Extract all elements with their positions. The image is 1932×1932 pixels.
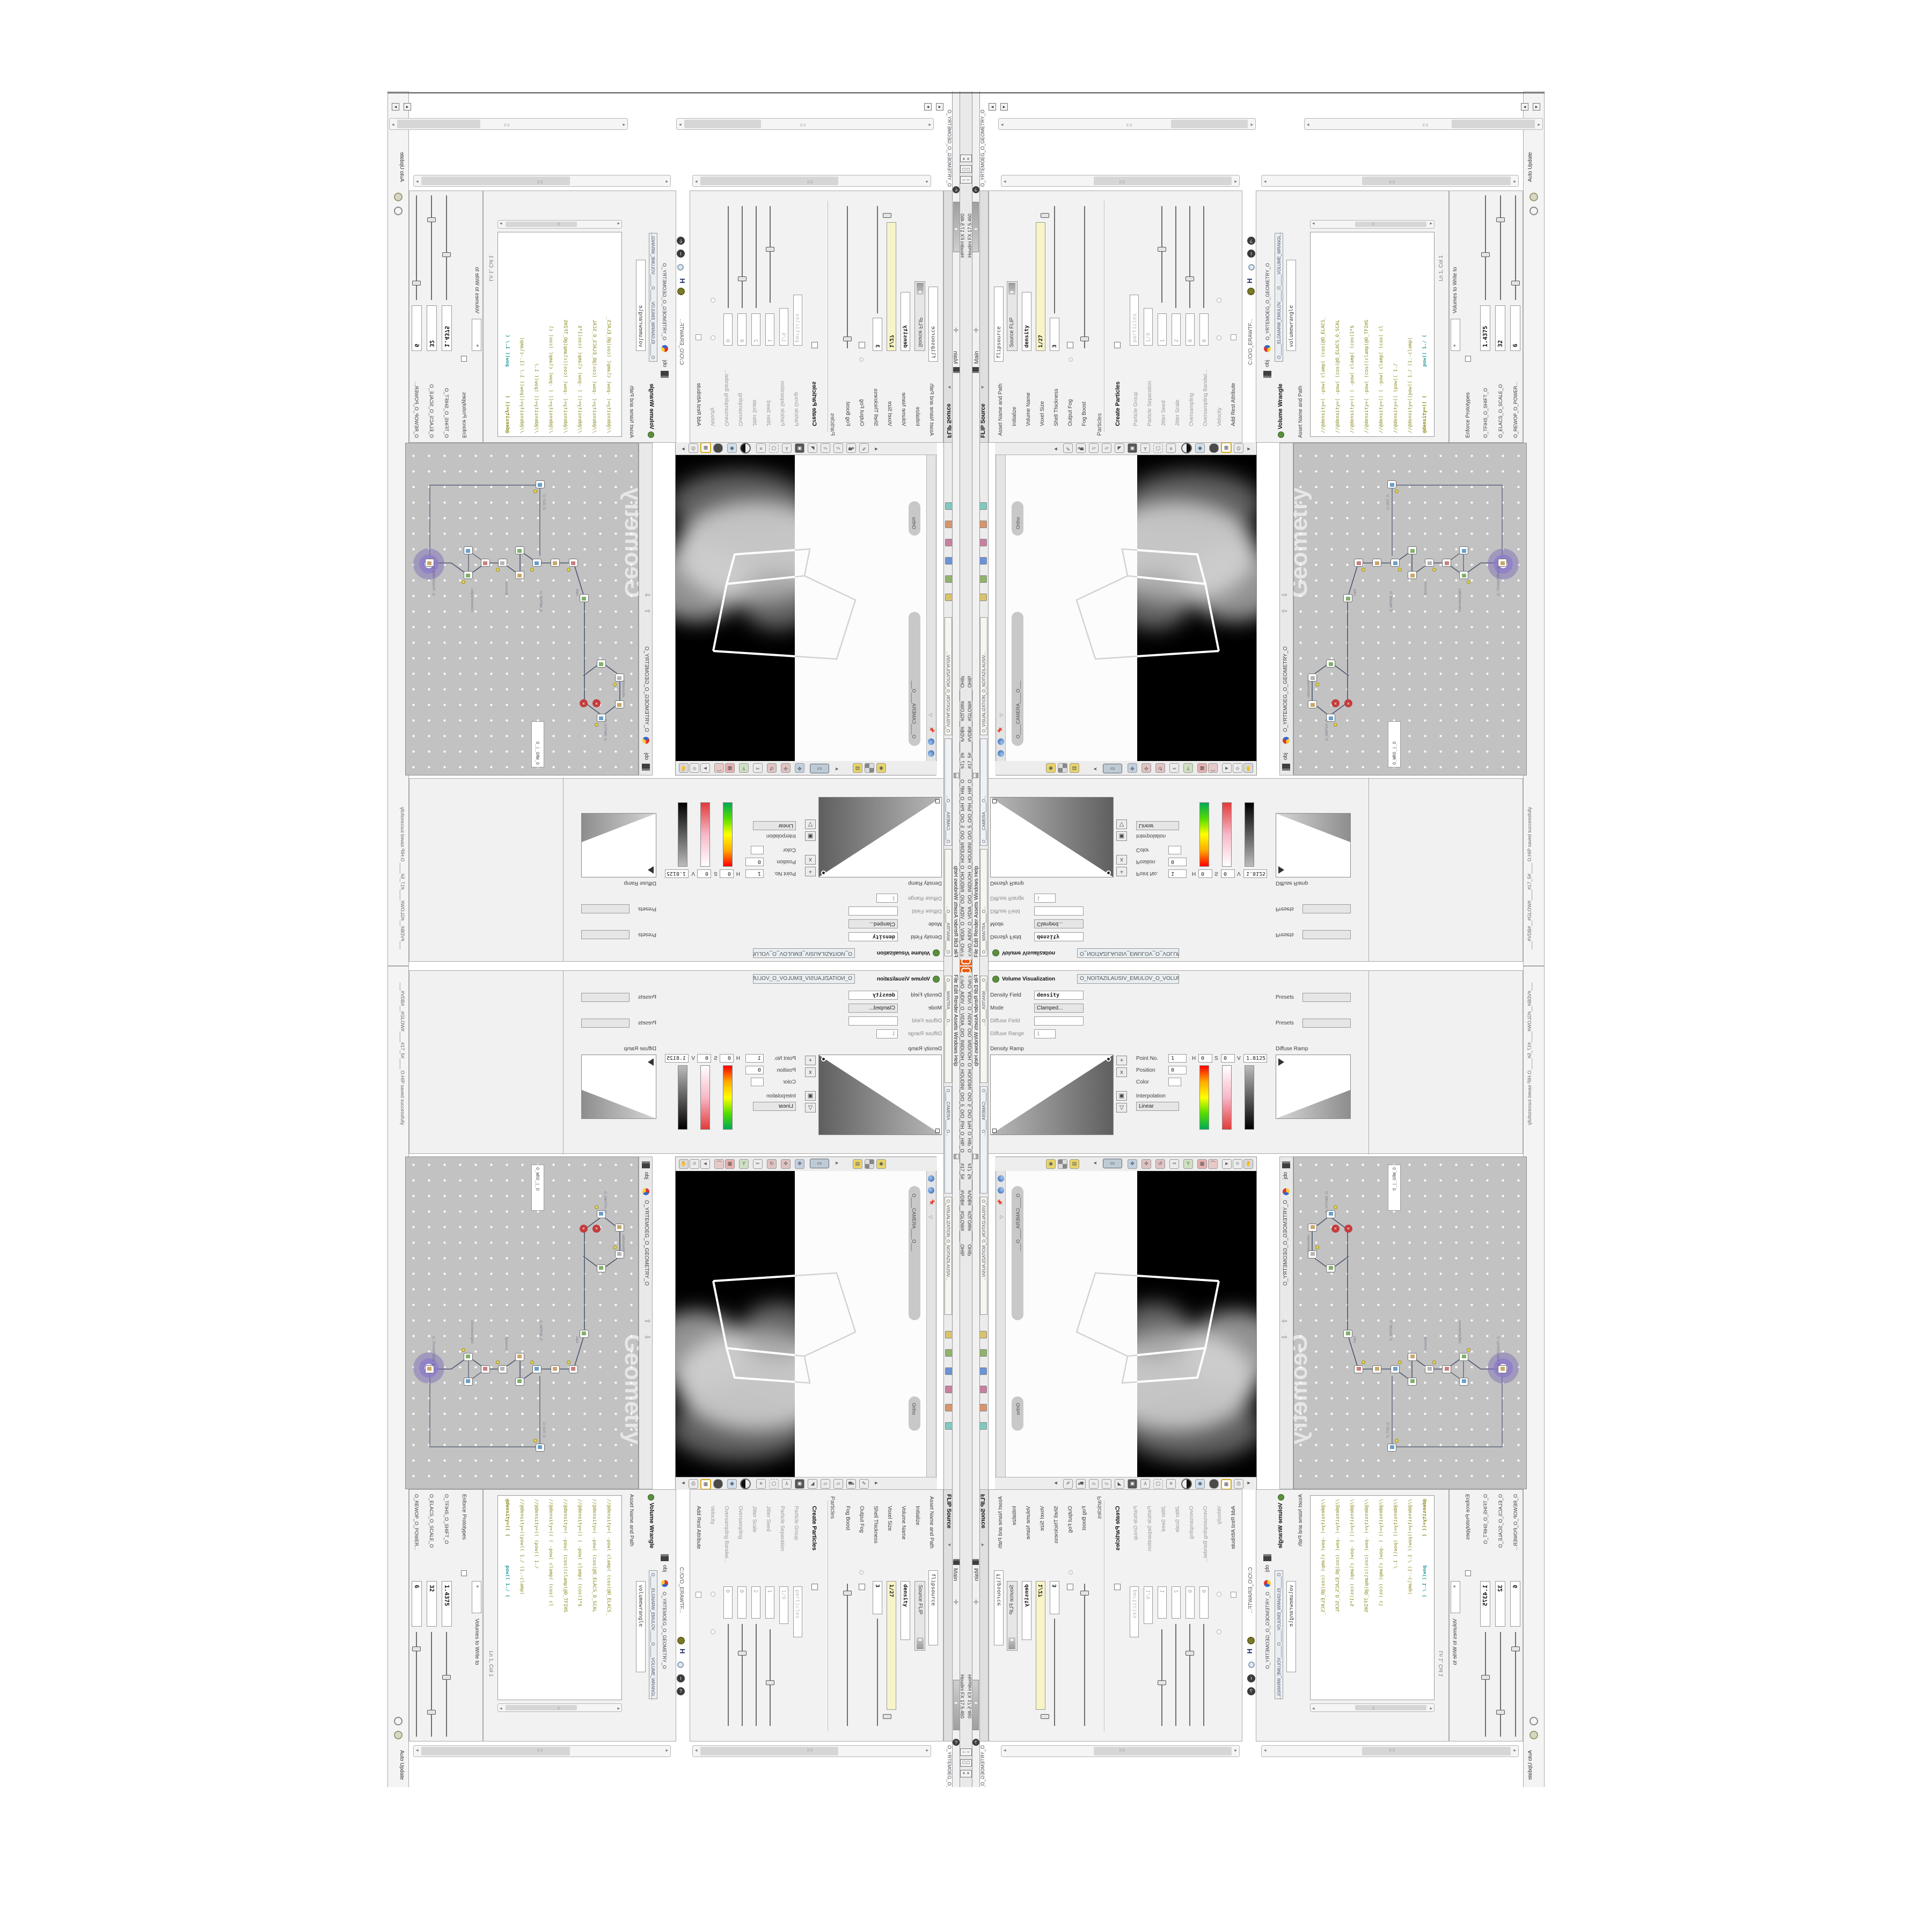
node-flag-dot[interactable] — [533, 1439, 537, 1443]
title-bar[interactable]: c:/o/O_AIDIV_O_VIDIA_O/O_INIDUOH_O_HOUDI… — [960, 966, 966, 1787]
rotate-tool-icon[interactable]: ↻ — [767, 763, 777, 773]
hue-input[interactable]: 0 — [1198, 1054, 1212, 1063]
particle-separation-input[interactable]: 1/9 — [1144, 1586, 1153, 1624]
notebook-icon[interactable]: ▤ — [853, 1159, 862, 1169]
lasso-tool-icon[interactable]: ⌒ — [1208, 1159, 1218, 1169]
shift-slider-handle[interactable] — [442, 1675, 451, 1680]
tripod-icon[interactable]: ⅄ — [782, 443, 792, 453]
sheet-icon[interactable]: ▱ — [1102, 443, 1111, 453]
desktop-selector[interactable]: Main — [973, 351, 980, 364]
help-icon[interactable]: ? — [1247, 1687, 1255, 1695]
search-icon[interactable] — [677, 264, 684, 270]
wrangle-obj-crumb[interactable]: obj — [661, 360, 668, 367]
render-sphere-icon[interactable] — [1181, 1479, 1192, 1489]
stow-sphere-icon[interactable] — [928, 738, 934, 745]
presets-dropdown-1[interactable] — [581, 993, 630, 1002]
flip-name-input[interactable]: flipsource — [928, 287, 938, 362]
diffuse-range-input[interactable]: 1 — [876, 1029, 898, 1038]
houdini-h-icon[interactable]: H — [678, 279, 686, 283]
graph-node[interactable] — [498, 559, 507, 567]
menu-items[interactable]: File Edit Render Assets Windows Help — [952, 866, 959, 957]
ramp-add-button[interactable]: + — [805, 1056, 816, 1065]
search-icon[interactable] — [1248, 1662, 1255, 1668]
color-swatch[interactable] — [751, 1078, 764, 1086]
scale-slider-handle[interactable] — [427, 1710, 436, 1715]
shift-slider[interactable] — [1485, 1632, 1486, 1737]
shelf-tool-icon[interactable] — [945, 502, 953, 510]
eye-icon[interactable]: ◉ — [1195, 443, 1205, 453]
graph-node[interactable] — [569, 1365, 578, 1373]
corner-arrow[interactable]: ◂ — [1000, 103, 1008, 111]
view-tool-icon[interactable]: ✋ — [1243, 1159, 1253, 1169]
color-swatch[interactable] — [751, 846, 764, 854]
stow-sphere-icon[interactable] — [928, 1187, 934, 1194]
shell-thickness-input[interactable]: 3 — [873, 318, 882, 351]
node-flag-dot[interactable] — [1467, 580, 1470, 584]
node-flag-dot[interactable] — [1432, 568, 1436, 572]
volume-name-input[interactable]: density — [1022, 292, 1031, 351]
title-bar[interactable]: c:/o/O_AIDIV_O_VIDIA_O/O_INIDUOH_O_HOUDI… — [966, 966, 972, 1787]
scale-slider-handle[interactable] — [1496, 1710, 1505, 1715]
position-input[interactable]: 0 — [745, 1066, 764, 1074]
mode-dropdown[interactable]: Clamped... — [848, 919, 898, 928]
particle-group-input[interactable]: particles — [793, 295, 802, 346]
write-to-input[interactable]: * — [1451, 1581, 1460, 1613]
graph-node[interactable] — [1308, 1224, 1317, 1232]
volume-name-input[interactable]: density — [901, 1581, 910, 1640]
gear-icon[interactable] — [1247, 1637, 1255, 1644]
power-slider-handle[interactable] — [412, 1646, 421, 1651]
curve-icon[interactable]: ◢ — [1115, 443, 1124, 453]
graph-node[interactable] — [1408, 546, 1417, 554]
jitter-scale-input[interactable]: 2 — [751, 1586, 760, 1619]
box-select-icon[interactable]: ▦ — [725, 763, 735, 773]
oversampling-bw-input[interactable]: 0 — [723, 1586, 733, 1619]
graph-node[interactable] — [515, 571, 524, 579]
wrangle-tab[interactable]: O_____ELGNARW_EMULOV_____O_____VOLUME_WR… — [649, 233, 657, 362]
graph-node[interactable] — [536, 1444, 545, 1452]
graph-node[interactable] — [1354, 559, 1363, 567]
ramp-expand-button[interactable]: ▣ — [805, 831, 816, 841]
box-select-icon[interactable]: ▦ — [1197, 763, 1207, 773]
particle-separation-input[interactable]: 1/9 — [1144, 308, 1153, 346]
sat-input[interactable]: 0 — [1221, 869, 1235, 878]
diffuse-ramp-widget[interactable] — [1276, 1055, 1351, 1119]
desktop-selector[interactable]: Main — [952, 1568, 959, 1581]
oversampling-input[interactable]: 0 — [1185, 313, 1195, 346]
quadview-icon[interactable]: ▦ — [1221, 1479, 1232, 1490]
enforce-checkbox[interactable] — [461, 356, 467, 362]
render-sphere-icon[interactable] — [740, 443, 751, 453]
shell-thickness-input[interactable]: 3 — [873, 1581, 882, 1614]
position-input[interactable]: 0 — [1168, 858, 1187, 866]
ortho-pill[interactable]: Ortho — [1012, 1396, 1023, 1431]
node-flag-dot[interactable] — [567, 1360, 570, 1364]
gear-icon[interactable] — [1247, 288, 1255, 295]
shift-param-input[interactable]: 1.4375 — [442, 1581, 452, 1627]
mode-dropdown[interactable]: Clamped... — [848, 1004, 898, 1013]
checker-diamond-icon[interactable] — [1058, 763, 1067, 773]
node-flag-dot[interactable] — [613, 683, 617, 686]
curve-icon[interactable]: ◢ — [1115, 1479, 1124, 1489]
objects-mode-box[interactable]: ▭ — [810, 764, 829, 773]
shelf-tab-mantra[interactable]: O____MANTRA____O... — [945, 976, 952, 1083]
point-no-input[interactable]: 1 — [745, 869, 764, 878]
color-wheel-icon[interactable] — [1283, 1188, 1290, 1195]
position-input[interactable]: 0 — [745, 858, 764, 866]
shell-thickness-input[interactable]: 3 — [1050, 1581, 1059, 1614]
shift-slider-handle[interactable] — [442, 252, 451, 257]
flip-name-input[interactable]: flipsource — [994, 1570, 1004, 1645]
rotate-tool-icon[interactable]: ↻ — [1155, 1159, 1165, 1169]
select-arrow-icon[interactable]: ◄ — [700, 763, 710, 773]
corner-arrow[interactable]: ▸ — [989, 103, 996, 111]
notebook-icon[interactable]: ▤ — [853, 763, 862, 773]
viewport-pane[interactable]: ✋ ⟐ ◄ ⌒ ▦ Y ✂ ↻ ✣ ✥ ▭ ➤ ▤ ◉ — [675, 443, 936, 775]
code-scrollbar[interactable]: ⠿◂▸ — [497, 1703, 622, 1712]
network-down-arrow[interactable]: ⇩ — [1281, 1334, 1289, 1340]
lamp-icon[interactable]: ◉ — [1046, 763, 1056, 773]
node-flag-dot[interactable] — [595, 1205, 598, 1209]
scale-slider[interactable] — [1500, 1632, 1501, 1737]
density-ramp-widget[interactable] — [818, 1055, 942, 1135]
particle-group-input[interactable]: particles — [1130, 1586, 1139, 1637]
cage-icon[interactable]: ▣ — [795, 443, 804, 453]
power-param-input[interactable]: 6 — [412, 305, 422, 351]
scale-param-input[interactable]: 32 — [1495, 305, 1505, 351]
scale-slider[interactable] — [431, 195, 432, 300]
presets-dropdown-2[interactable] — [1302, 904, 1351, 913]
ramp-flip-button[interactable]: ▽ — [805, 1103, 816, 1113]
graph-node[interactable] — [464, 1353, 473, 1361]
enforce-checkbox[interactable] — [461, 1570, 467, 1576]
maximize-button[interactable]: □ — [966, 1759, 972, 1767]
lasso-tool-icon[interactable]: ⌒ — [714, 763, 724, 773]
fog-boost-slider-handle[interactable] — [1080, 336, 1089, 341]
select-arrow-icon[interactable]: ◄ — [1222, 763, 1232, 773]
minimize-button[interactable]: – — [960, 176, 966, 184]
point-no-input[interactable]: 1 — [1168, 1054, 1187, 1063]
network-path-text[interactable]: O_YRTEMOEG_O_GEOMETRY_O — [1282, 646, 1290, 732]
clapperboard-icon[interactable] — [1282, 1161, 1290, 1168]
diffuse-ramp-widget[interactable] — [581, 1055, 656, 1119]
shelf-tool-icon[interactable] — [945, 1404, 953, 1411]
axis-jack-icon[interactable]: Y — [1183, 763, 1193, 773]
diffuse-ramp-handle[interactable] — [644, 1058, 654, 1066]
cook-update-icon[interactable] — [1529, 1717, 1538, 1725]
network-up-arrow[interactable]: ⇧ — [1281, 608, 1289, 614]
stow-collapse-icon[interactable]: ◁ — [1000, 1214, 1004, 1220]
flip-slider-handle[interactable] — [1158, 247, 1166, 252]
color-wheel-icon[interactable] — [1283, 737, 1290, 744]
snapshot-icon[interactable]: ⎙ — [1234, 443, 1243, 453]
scale-param-input[interactable]: 32 — [1495, 1581, 1505, 1627]
shelf-tool-icon[interactable] — [979, 1331, 987, 1338]
flip-slider-handle[interactable] — [1158, 1680, 1166, 1685]
interpolation-dropdown[interactable]: Linear — [1136, 1102, 1179, 1111]
hue-gradient-slider[interactable] — [1199, 802, 1209, 867]
voxel-size-input[interactable]: 1/27 — [1036, 222, 1045, 351]
claw-tool-icon[interactable]: ✣ — [781, 763, 791, 773]
lamp-icon[interactable]: ◉ — [1046, 1159, 1056, 1169]
handles-tool-icon[interactable]: ⟐ — [690, 1159, 699, 1169]
render-area[interactable]: O____CAMERA____O___ Ortho — [1004, 1171, 1256, 1477]
diffuse-ramp-handle[interactable] — [1278, 866, 1288, 874]
fog-boost-slider-handle[interactable] — [1080, 1591, 1089, 1596]
val-gradient-slider[interactable] — [1245, 1065, 1254, 1130]
minimize-button[interactable]: – — [966, 176, 972, 184]
presets-dropdown-2[interactable] — [581, 1019, 630, 1028]
shelf-tab-camera[interactable]: O____CAMERA____O... — [945, 1086, 952, 1194]
ramp-point-square[interactable] — [935, 1129, 940, 1133]
eye-icon[interactable]: ◉ — [727, 1479, 737, 1489]
shelf-tab-camera[interactable]: O____CAMERA____O... — [945, 738, 952, 846]
node-flag-dot[interactable] — [533, 489, 537, 493]
axis-jack-icon[interactable]: Y — [739, 1159, 749, 1169]
graph-node[interactable] — [1408, 1378, 1417, 1386]
voxel-size-input[interactable]: 1/27 — [1036, 1581, 1045, 1710]
tripod-icon[interactable]: ⅄ — [1140, 1479, 1150, 1489]
view-tool-icon[interactable]: ✋ — [1243, 763, 1253, 773]
ramp-flip-button[interactable]: ▽ — [805, 819, 816, 829]
wrangle-name-input[interactable]: volumewrangle — [1286, 260, 1296, 351]
node-flag-dot[interactable] — [496, 568, 500, 572]
val-gradient-slider[interactable] — [678, 1065, 687, 1130]
corner-arrow[interactable]: ▸ — [936, 103, 943, 111]
graph-node[interactable] — [1387, 1444, 1396, 1452]
presets-dropdown-2[interactable] — [1302, 1019, 1351, 1028]
velocity-radio[interactable] — [711, 298, 715, 303]
node-flag-dot[interactable] — [1432, 1360, 1436, 1364]
position-input[interactable]: 0 — [1168, 1066, 1187, 1074]
diffuse-field-input[interactable] — [1034, 906, 1084, 916]
fwd-arrow-icon[interactable]: ► — [872, 1479, 881, 1488]
pin-icon[interactable]: 📌 — [928, 727, 934, 732]
info-icon[interactable]: i — [677, 250, 685, 258]
node-flag-dot[interactable] — [1398, 568, 1402, 572]
scale-param-input[interactable]: 32 — [427, 305, 437, 351]
node-flag-dot[interactable] — [1395, 489, 1399, 493]
diffuse-ramp-widget[interactable] — [1276, 813, 1351, 877]
color-wheel-icon[interactable] — [1264, 345, 1271, 352]
network-path-text[interactable]: O_YRTEMOEG_O_GEOMETRY_O — [642, 1200, 650, 1286]
wrangle-tab[interactable]: O_____ELGNARW_EMULOV_____O_____VOLUME_WR… — [1275, 233, 1283, 362]
help-icon[interactable]: ? — [1247, 237, 1255, 245]
network-badge-field[interactable]: O_WRO_|_O — [531, 1165, 544, 1211]
flip-header-collapse[interactable]: ▾ — [945, 1543, 953, 1546]
network-path-text[interactable]: O_YRTEMOEG_O_GEOMETRY_O — [642, 646, 650, 732]
sheet2-icon[interactable]: ▱ — [833, 1479, 843, 1489]
expand-arrow-icon[interactable]: ➤ — [832, 1159, 841, 1168]
volume-visualization-tab[interactable]: O_NOITAZILAUSIV_EMULOV_O_VOLUME_VISUAL..… — [1077, 948, 1179, 958]
jitter-scale-input[interactable]: 2 — [1172, 313, 1181, 346]
color-swatch[interactable] — [1168, 1078, 1181, 1086]
graph-node[interactable] — [1391, 1365, 1400, 1373]
create-particles-checkbox[interactable] — [1114, 1584, 1121, 1590]
interpolation-dropdown[interactable]: Linear — [753, 1102, 796, 1111]
stow-sphere-icon[interactable] — [928, 1175, 934, 1182]
voxel-size-input[interactable]: 1/27 — [887, 222, 896, 351]
objects-mode-box[interactable]: ▭ — [1103, 1159, 1122, 1168]
particle-separation-input[interactable]: 1/9 — [779, 308, 788, 346]
oversampling-bw-input[interactable]: 0 — [723, 313, 733, 346]
edge-scrollbar[interactable]: ⠿⠿◂▸ — [998, 118, 1256, 130]
shelf-tool-icon[interactable] — [979, 1367, 987, 1375]
network-obj-crumb[interactable]: obj — [642, 753, 650, 760]
network-badge-field[interactable]: O_WRO_|_O — [1388, 1165, 1401, 1211]
error-badge-icon[interactable]: × — [1331, 699, 1340, 707]
search-icon[interactable] — [677, 1662, 684, 1668]
dashed-box-icon[interactable]: ▢ — [769, 443, 779, 453]
back-arrow-icon[interactable]: ◄ — [679, 444, 687, 453]
render-area[interactable]: O____CAMERA____O___ Ortho — [676, 455, 928, 761]
velocity-radio[interactable] — [1217, 1629, 1221, 1634]
shift-param-input[interactable]: 1.4375 — [1480, 1581, 1490, 1627]
dashed-box-icon[interactable]: ▢ — [1153, 443, 1163, 453]
notebook-icon[interactable]: ▤ — [1070, 763, 1079, 773]
graph-node[interactable] — [1459, 1378, 1468, 1386]
val-input[interactable]: 1.8125 — [665, 869, 689, 878]
grid-menu-icon[interactable] — [973, 1154, 978, 1159]
pen-icon[interactable]: ✎ — [1063, 443, 1073, 453]
expand-arrow-icon[interactable]: ➤ — [1091, 1159, 1100, 1168]
question-circle-icon[interactable]: ? — [953, 1739, 960, 1746]
memory-icon[interactable] — [394, 1731, 402, 1739]
shift-slider-handle[interactable] — [1481, 1675, 1490, 1680]
ramp-add-button[interactable]: + — [805, 867, 816, 876]
volume-visualization-tab[interactable]: O_NOITAZILAUSIV_EMULOV_O_VOLUME_VISUAL..… — [1077, 974, 1179, 984]
rotate-tool-icon[interactable]: ↻ — [767, 1159, 777, 1169]
scissors-icon[interactable]: ✂ — [753, 1159, 763, 1169]
graph-node[interactable] — [515, 1378, 524, 1386]
pane-scrollbar[interactable]: ⠿⠿◂▸ — [692, 1745, 931, 1757]
flip-slider-handle[interactable] — [738, 276, 747, 281]
shelf-tool-icon[interactable] — [945, 1331, 953, 1338]
handles-tool-icon[interactable]: ⟐ — [690, 763, 699, 773]
diffuse-field-input[interactable] — [848, 1016, 898, 1026]
ramp-point-handle[interactable] — [821, 1057, 826, 1062]
shelf-tool-icon[interactable] — [945, 1349, 953, 1357]
quadview-icon[interactable]: ▦ — [700, 1479, 711, 1490]
create-particles-checkbox[interactable] — [811, 1584, 818, 1590]
graph-node[interactable] — [1442, 559, 1451, 567]
jitter-seed-input[interactable]: 1 — [765, 1586, 774, 1619]
shelf-tab-mantra[interactable]: O____MANTRA____O... — [980, 849, 987, 956]
velocity-radio[interactable] — [1217, 335, 1221, 340]
flip-name-input[interactable]: flipsource — [928, 1570, 938, 1645]
fog-boost-slider-handle[interactable] — [843, 1591, 852, 1596]
diffuse-field-input[interactable] — [1034, 1016, 1084, 1026]
flip-slider-handle[interactable] — [766, 1680, 774, 1685]
corner-arrow[interactable]: ◂ — [924, 103, 932, 111]
graph-node[interactable] — [1372, 1365, 1381, 1373]
clapperboard-icon[interactable] — [642, 1161, 650, 1168]
code-scrollbar[interactable]: ⠿◂▸ — [1310, 1703, 1435, 1712]
output-fog-checkbox[interactable] — [1067, 1584, 1073, 1590]
view-tool-icon[interactable]: ✋ — [679, 763, 689, 773]
power-param-input[interactable]: 6 — [1510, 1581, 1520, 1627]
cook-update-icon[interactable] — [394, 1717, 402, 1725]
interpolation-dropdown[interactable]: Linear — [1136, 821, 1179, 830]
jitter-seed-input[interactable]: 1 — [1158, 1586, 1167, 1619]
viewport-pane[interactable]: ✋ ⟐ ◄ ⌒ ▦ Y ✂ ↻ ✣ ✥ ▭ ➤ ▤ ◉ — [996, 443, 1257, 775]
graph-node[interactable] — [1442, 1365, 1451, 1373]
sat-gradient-slider[interactable] — [1222, 802, 1232, 867]
eye-icon[interactable]: ◉ — [1195, 1479, 1205, 1489]
corner-arrow[interactable]: ▸ — [1521, 103, 1528, 111]
ramp-flip-button[interactable]: ▽ — [1116, 819, 1127, 829]
stow-sphere-icon[interactable] — [998, 750, 1004, 757]
ramp-point-square[interactable] — [992, 1129, 997, 1133]
add-rest-checkbox[interactable] — [1231, 1592, 1236, 1598]
voxel-size-input[interactable]: 1/27 — [887, 1581, 896, 1710]
graph-node[interactable] — [1425, 1365, 1434, 1373]
node-flag-dot[interactable] — [1398, 1360, 1402, 1364]
camera-pill[interactable]: O____CAMERA____O___ — [909, 612, 920, 746]
menu-items[interactable]: File Edit Render Assets Windows Help — [952, 975, 959, 1066]
stack-icon[interactable]: ≡ — [1166, 443, 1176, 453]
pose-tool-icon[interactable]: ✥ — [795, 763, 804, 773]
cart-icon[interactable]: ⛟ — [1076, 443, 1086, 453]
pen-icon[interactable]: ✎ — [859, 1479, 869, 1489]
shift-slider[interactable] — [446, 195, 447, 300]
shelf-tool-icon[interactable] — [979, 594, 987, 601]
velocity-radio[interactable] — [711, 1592, 715, 1597]
shelf-tool-icon[interactable] — [945, 539, 953, 546]
edge-scrollbar[interactable]: ⠿⠿◂▸ — [676, 118, 934, 130]
graph-node[interactable] — [1459, 546, 1468, 554]
mode-dropdown[interactable]: Clamped... — [1034, 1004, 1084, 1013]
houdini-h-icon[interactable]: H — [678, 1649, 686, 1653]
diffuse-range-input[interactable]: 1 — [876, 894, 898, 903]
presets-dropdown-1[interactable] — [1302, 993, 1351, 1002]
scissors-icon[interactable]: ✂ — [1169, 1159, 1179, 1169]
shelf-tool-icon[interactable] — [979, 1422, 987, 1430]
render-sphere-icon[interactable] — [1181, 443, 1192, 453]
node-flag-dot[interactable] — [1315, 1246, 1319, 1249]
ramp-point-square[interactable] — [935, 799, 940, 803]
code-scrollbar[interactable]: ⠿◂▸ — [1310, 220, 1435, 229]
node-flag-dot[interactable] — [530, 1360, 534, 1364]
network-down-arrow[interactable]: ⇩ — [643, 1334, 651, 1340]
lasso-tool-icon[interactable]: ⌒ — [714, 1159, 724, 1169]
pose-tool-icon[interactable]: ✥ — [795, 1159, 804, 1169]
pane-scrollbar[interactable]: ⠿⠿◂▸ — [1001, 175, 1240, 187]
sheet-icon[interactable]: ▱ — [1102, 1479, 1111, 1489]
node-flag-dot[interactable] — [595, 723, 598, 727]
error-badge-icon[interactable]: × — [1331, 1225, 1340, 1233]
val-gradient-slider[interactable] — [1245, 802, 1254, 867]
pan-icon[interactable]: ✛ — [972, 1599, 980, 1605]
code-scrollbar[interactable]: ⠿◂▸ — [497, 220, 622, 229]
diffuse-ramp-handle[interactable] — [644, 866, 654, 874]
dashed-box-icon[interactable]: ▢ — [1153, 1479, 1163, 1489]
info-icon[interactable]: i — [1247, 1674, 1255, 1682]
ortho-pill[interactable]: Ortho — [1012, 501, 1023, 536]
oversampling-bw-input[interactable]: 0 — [1199, 313, 1209, 346]
eye-icon[interactable]: ◉ — [727, 443, 737, 453]
wrangle-obj-crumb[interactable]: obj — [1264, 360, 1271, 367]
ramp-delete-button[interactable]: x — [1116, 1067, 1127, 1077]
wrangle-obj-crumb[interactable]: obj — [661, 1565, 668, 1572]
title-bar[interactable]: c:/o/O_AIDIV_O_VIDIA_O/O_INIDUOH_O_HOUDI… — [966, 91, 972, 966]
graph-node[interactable] — [515, 546, 524, 554]
create-particles-checkbox[interactable] — [811, 342, 818, 348]
grid-menu-icon[interactable] — [973, 773, 978, 778]
info-icon[interactable]: i — [1247, 250, 1255, 258]
shelf-tool-icon[interactable] — [979, 557, 987, 565]
flip-header-collapse[interactable]: ▾ — [945, 386, 953, 389]
